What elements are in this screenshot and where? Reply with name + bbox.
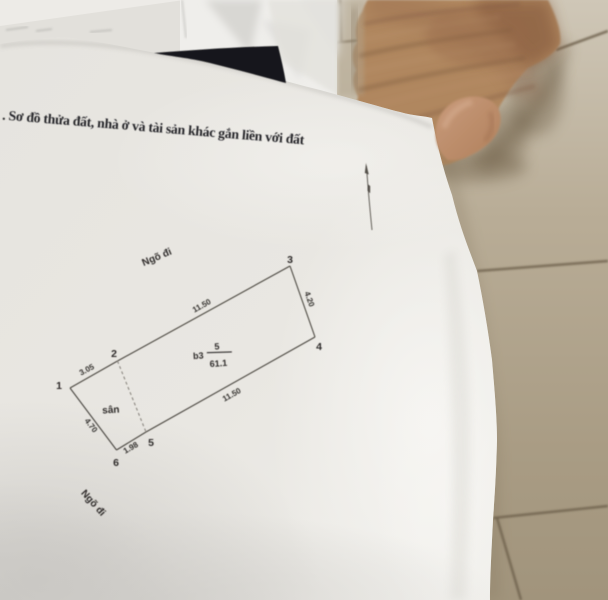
svg-text:61.1: 61.1: [209, 358, 227, 369]
svg-text:1: 1: [56, 380, 62, 392]
svg-text:6: 6: [113, 457, 119, 469]
svg-text:4: 4: [316, 341, 322, 353]
svg-text:5: 5: [148, 437, 154, 449]
svg-text:sân: sân: [102, 405, 120, 417]
svg-text:b3: b3: [193, 350, 204, 361]
svg-text:3: 3: [287, 254, 293, 266]
svg-text:2: 2: [111, 348, 117, 360]
svg-text:5: 5: [214, 341, 220, 351]
